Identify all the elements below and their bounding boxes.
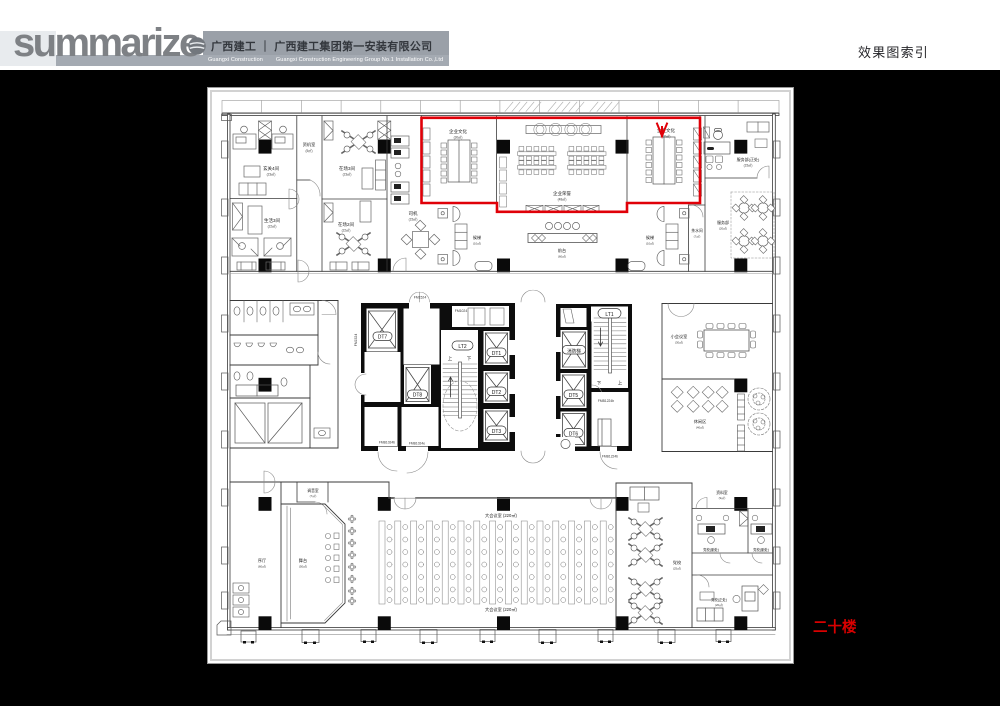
svg-text:DT2: DT2 — [492, 390, 502, 396]
svg-text:上: 上 — [618, 380, 623, 386]
svg-text:资机室: 资机室 — [303, 141, 316, 148]
svg-text:资料室: 资料室 — [716, 490, 728, 495]
svg-text:(10㎡): (10㎡) — [646, 241, 654, 246]
svg-text:DT5: DT5 — [569, 393, 579, 399]
svg-text:(50㎡): (50㎡) — [299, 564, 307, 569]
svg-text:候梯: 候梯 — [473, 234, 481, 241]
svg-text:DT1: DT1 — [492, 351, 502, 357]
svg-text:党校(副处): 党校(副处) — [753, 547, 769, 552]
svg-text:调音室: 调音室 — [307, 488, 319, 493]
svg-text:(20㎡): (20㎡) — [715, 602, 723, 607]
svg-text:大会议室 (220㎡): 大会议室 (220㎡) — [485, 606, 517, 613]
svg-text:茶水间: 茶水间 — [691, 228, 703, 233]
svg-text:(23㎡): (23㎡) — [267, 172, 276, 177]
svg-text:上: 上 — [448, 355, 453, 361]
svg-text:序厅: 序厅 — [258, 557, 266, 564]
svg-text:候梯: 候梯 — [646, 234, 654, 241]
svg-text:DT7: DT7 — [378, 335, 388, 341]
svg-text:(48㎡): (48㎡) — [558, 197, 567, 202]
svg-text:(60㎡): (60㎡) — [258, 564, 266, 569]
svg-text:企业文化: 企业文化 — [449, 128, 467, 135]
svg-text:(30㎡): (30㎡) — [454, 135, 463, 140]
svg-text:FM1524: FM1524 — [354, 334, 358, 347]
svg-text:消防梯: 消防梯 — [567, 348, 581, 355]
svg-text:(15㎡): (15㎡) — [744, 163, 753, 168]
svg-text:(22㎡): (22㎡) — [268, 224, 277, 229]
svg-text:(22㎡): (22㎡) — [342, 228, 351, 233]
svg-text:在场2间: 在场2间 — [338, 221, 355, 228]
svg-text:(25㎡): (25㎡) — [673, 566, 681, 571]
svg-text:休闲区: 休闲区 — [694, 418, 707, 425]
svg-text:(20㎡): (20㎡) — [719, 226, 727, 231]
svg-text:FMB1224b: FMB1224b — [598, 399, 614, 403]
svg-text:(15㎡): (15㎡) — [409, 217, 418, 222]
svg-text:党校(副处): 党校(副处) — [703, 547, 719, 552]
svg-text:LT1: LT1 — [605, 312, 613, 318]
svg-text:(40㎡): (40㎡) — [696, 425, 704, 430]
svg-text:(23㎡): (23㎡) — [343, 172, 352, 177]
svg-text:党校: 党校 — [673, 559, 682, 566]
svg-text:(10㎡): (10㎡) — [473, 241, 481, 246]
svg-text:(5㎡): (5㎡) — [305, 148, 312, 153]
svg-text:LT2: LT2 — [458, 344, 466, 350]
svg-text:司机: 司机 — [409, 210, 418, 217]
svg-text:(9㎡): (9㎡) — [719, 495, 726, 500]
svg-text:FMB1024e: FMB1024e — [409, 442, 425, 446]
svg-text:服务部: 服务部 — [717, 219, 729, 225]
svg-text:企业荣誉: 企业荣誉 — [553, 190, 571, 197]
svg-text:生活3间: 生活3间 — [264, 217, 281, 224]
svg-text:小会议室: 小会议室 — [671, 333, 688, 340]
svg-text:FM1524: FM1524 — [414, 296, 427, 300]
svg-text:(60㎡): (60㎡) — [558, 254, 566, 259]
svg-text:党校(正处): 党校(正处) — [711, 597, 727, 602]
svg-text:(7㎡): (7㎡) — [694, 234, 701, 239]
svg-text:玄关4间: 玄关4间 — [263, 165, 280, 172]
svg-text:在场3间: 在场3间 — [339, 165, 356, 172]
svg-text:DT8: DT8 — [413, 393, 423, 399]
svg-text:大会议室 (220㎡): 大会议室 (220㎡) — [485, 512, 517, 519]
svg-text:DT6: DT6 — [569, 432, 579, 438]
svg-text:舞台: 舞台 — [299, 557, 307, 564]
svg-text:服务部(正处): 服务部(正处) — [737, 156, 760, 162]
svg-text:(7㎡): (7㎡) — [310, 493, 317, 498]
svg-text:FMB1224b: FMB1224b — [602, 455, 618, 459]
svg-text:前台: 前台 — [558, 247, 566, 254]
svg-text:FM1024: FM1024 — [455, 309, 468, 313]
svg-text:(30㎡): (30㎡) — [675, 340, 683, 345]
svg-text:DT3: DT3 — [492, 429, 502, 435]
svg-text:FMB1024b: FMB1024b — [379, 441, 395, 445]
